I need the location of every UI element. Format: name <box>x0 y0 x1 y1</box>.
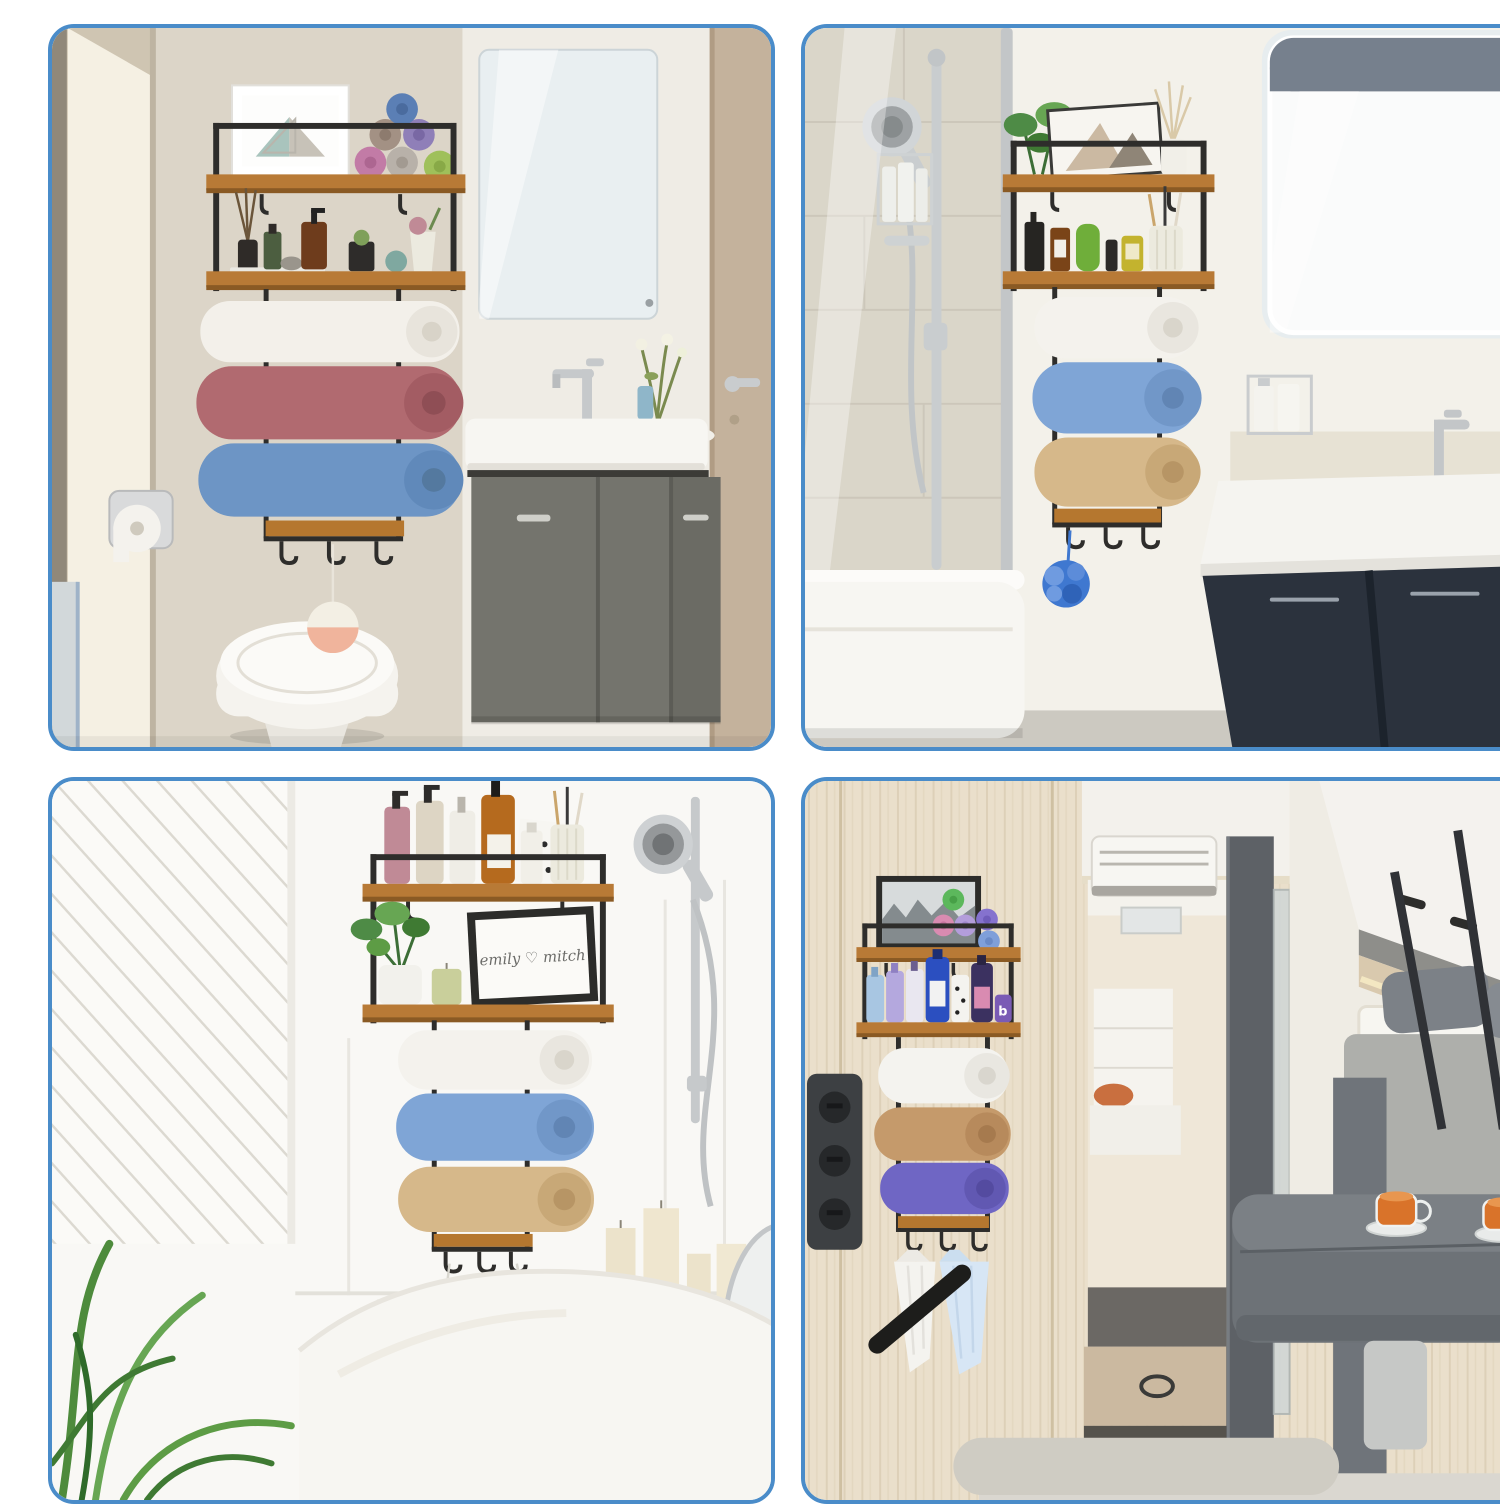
bed-pillow <box>1094 1084 1134 1108</box>
blue-bottle <box>637 386 653 420</box>
wood-shelf <box>206 271 465 287</box>
green-bottle <box>264 232 282 270</box>
rolled-bath-towel-blue <box>1032 362 1201 433</box>
green-candle <box>432 963 462 1005</box>
backsplash <box>1230 432 1500 481</box>
skylight <box>1121 908 1180 934</box>
product-photo-collage: emily ♡ mitch <box>0 0 1500 1500</box>
wood-base <box>434 1234 533 1247</box>
ac-unit <box>1092 836 1217 895</box>
pink-pump-bottle <box>384 807 410 884</box>
power-outlets <box>807 1074 862 1250</box>
cabinet-handle <box>1410 592 1479 596</box>
rolled-bath-towel-beige <box>1034 437 1200 506</box>
photo-panel-top-left <box>48 24 775 751</box>
forest-art-frame <box>876 876 981 949</box>
bed <box>1090 1105 1181 1154</box>
rolled-bath-towel-rose <box>196 366 463 439</box>
table-leg <box>1364 1341 1427 1450</box>
wood-shelf <box>363 884 614 899</box>
bench-cushion <box>953 1438 1339 1495</box>
cream-pump-bottle <box>416 801 444 884</box>
cabinet-handle <box>683 515 709 521</box>
rolled-bath-towel-white <box>878 1048 1010 1103</box>
left-door-light <box>52 28 156 747</box>
cabinet-handle <box>517 515 551 522</box>
amber-pump-bottle <box>301 222 327 269</box>
wood-shelf <box>1003 174 1215 189</box>
photo-panel-bottom-left: emily ♡ mitch <box>48 777 775 1504</box>
vase <box>410 232 436 272</box>
wardrobe <box>1226 836 1273 1439</box>
rolled-bath-towel-white <box>200 301 459 362</box>
photo-panel-bottom-right: b <box>801 777 1500 1504</box>
counter <box>1201 473 1500 564</box>
candle-jar <box>349 242 375 272</box>
script-art-frame: emily ♡ mitch <box>467 906 598 1007</box>
seat-headrest <box>1380 964 1492 1034</box>
glass-screen <box>805 28 1013 597</box>
rolled-bath-towel-white <box>398 1030 592 1089</box>
wood-shelf <box>1003 271 1215 286</box>
teal-stone <box>385 251 407 273</box>
white-pump-bottle <box>450 811 476 884</box>
jar-letter: b <box>998 1004 1007 1019</box>
rolled-bath-towel-blue <box>396 1094 594 1161</box>
mirror <box>479 50 657 319</box>
shelf-frame-top <box>213 123 456 129</box>
shower-step <box>1088 1287 1226 1346</box>
wood-base <box>266 521 404 537</box>
freestanding-tub <box>299 1271 771 1500</box>
slat-panel <box>52 781 295 1244</box>
led-mirror <box>1262 30 1500 339</box>
rolled-bath-towel-blue <box>198 443 463 516</box>
rolled-bath-towel-purple <box>880 1163 1009 1214</box>
rolled-bath-towel-white <box>1034 297 1198 358</box>
photo-panel-top-right <box>801 24 1500 751</box>
wood-base <box>1054 509 1161 523</box>
wood-shelf <box>206 174 465 190</box>
framed-geometric-art <box>232 85 349 176</box>
rv-corridor <box>1084 880 1230 1446</box>
monogram-jar: b <box>995 995 1012 1023</box>
stone <box>280 256 302 270</box>
navy-vanity <box>1201 376 1500 747</box>
wood-shelf <box>363 1005 614 1020</box>
sink <box>465 419 707 470</box>
plant-pot <box>378 965 422 1005</box>
wood-base <box>898 1216 989 1228</box>
succulent <box>409 217 427 235</box>
rolled-bath-towel-beige <box>874 1107 1010 1160</box>
cabinet-handle <box>1270 598 1339 602</box>
rolled-bath-towel-beige <box>398 1167 594 1232</box>
